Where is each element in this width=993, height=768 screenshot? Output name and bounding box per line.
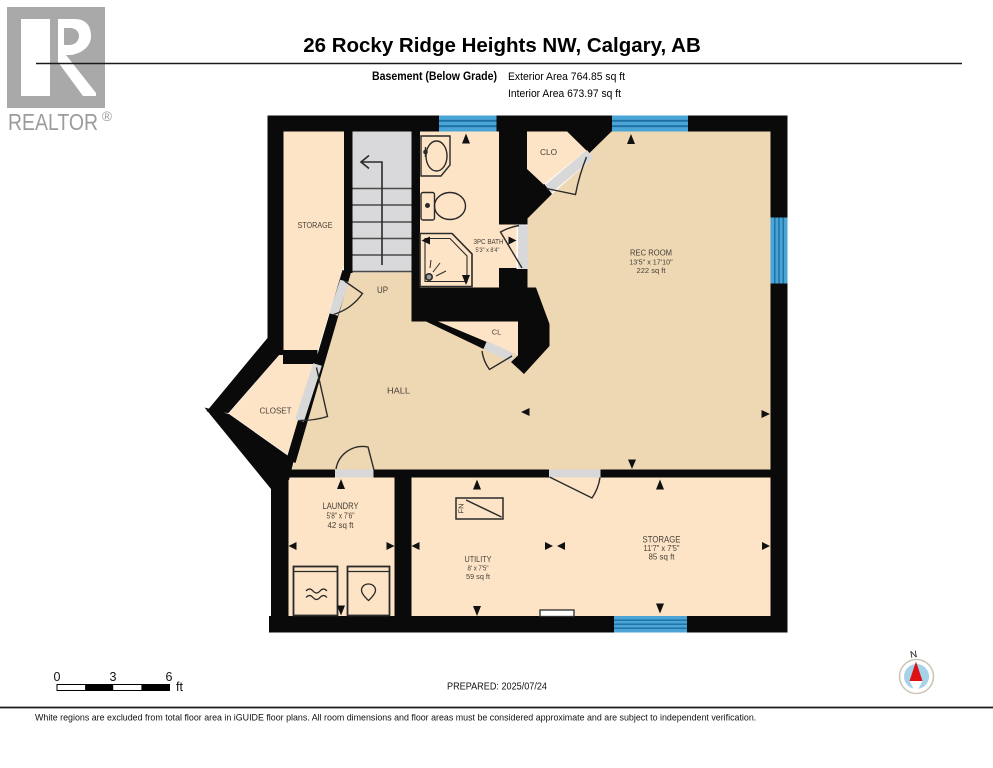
svg-text:5'8" x 7'6": 5'8" x 7'6" — [327, 512, 355, 521]
svg-text:White regions are excluded fro: White regions are excluded from total fl… — [35, 713, 756, 723]
svg-text:STORAGE: STORAGE — [298, 220, 333, 230]
svg-text:222 sq ft: 222 sq ft — [637, 266, 667, 275]
svg-text:PREPARED: 2025/07/24: PREPARED: 2025/07/24 — [447, 682, 547, 693]
svg-text:Exterior Area 764.85 sq ft: Exterior Area 764.85 sq ft — [508, 71, 625, 83]
svg-text:FN: FN — [457, 504, 466, 514]
svg-text:CLOSET: CLOSET — [260, 406, 292, 416]
svg-text:59 sq ft: 59 sq ft — [466, 572, 491, 581]
svg-text:REALTOR: REALTOR — [8, 109, 98, 135]
svg-text:®: ® — [102, 109, 112, 124]
svg-text:ft: ft — [176, 680, 183, 694]
svg-text:UTILITY: UTILITY — [465, 554, 492, 564]
svg-text:CL: CL — [492, 328, 502, 337]
svg-text:42 sq ft: 42 sq ft — [328, 521, 355, 530]
svg-text:85 sq ft: 85 sq ft — [649, 552, 676, 562]
svg-text:3PC BATH: 3PC BATH — [474, 237, 504, 246]
svg-text:26 Rocky Ridge Heights NW, Cal: 26 Rocky Ridge Heights NW, Calgary, AB — [303, 34, 701, 57]
svg-text:Interior Area 673.97 sq ft: Interior Area 673.97 sq ft — [508, 88, 621, 100]
svg-text:6: 6 — [166, 670, 173, 684]
svg-text:LAUNDRY: LAUNDRY — [323, 501, 359, 511]
svg-text:0: 0 — [54, 670, 61, 684]
svg-text:3: 3 — [110, 670, 117, 684]
svg-text:Basement (Below Grade): Basement (Below Grade) — [372, 71, 497, 83]
svg-text:HALL: HALL — [387, 386, 410, 396]
svg-text:REC ROOM: REC ROOM — [630, 249, 672, 258]
svg-text:UP: UP — [377, 285, 388, 295]
svg-text:5'3" x 8'4": 5'3" x 8'4" — [476, 247, 500, 254]
svg-text:CLO: CLO — [540, 148, 557, 157]
